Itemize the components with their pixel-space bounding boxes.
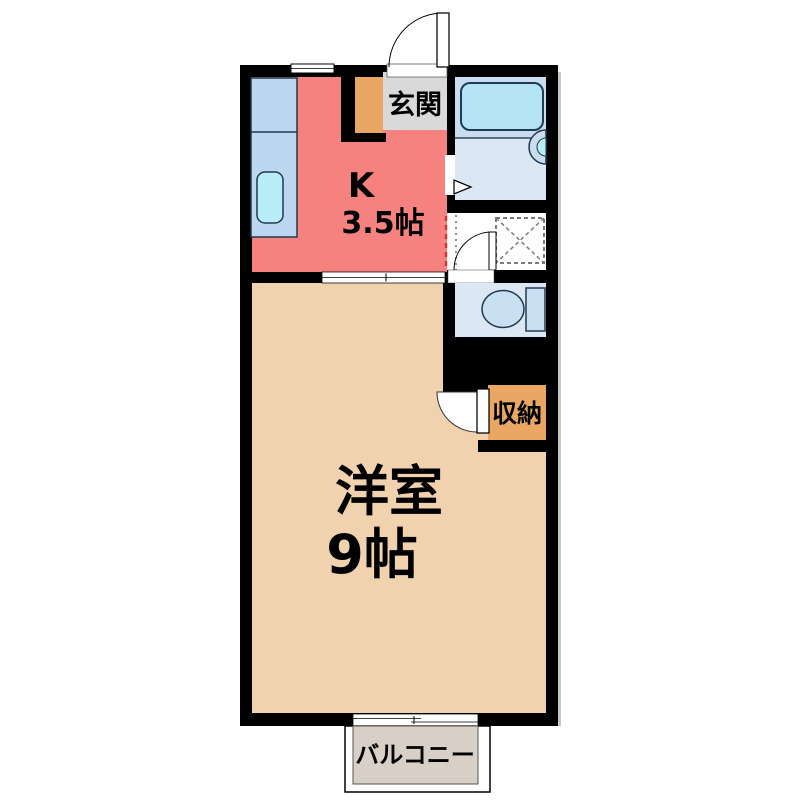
toilet-door-opening — [448, 270, 494, 283]
balcony-sliding-window-icon — [353, 714, 478, 726]
floorplan-canvas: 玄関 K 3.5帖 — [0, 0, 800, 800]
storage-bottom-wall — [478, 440, 546, 452]
entrance-door-arc-icon — [389, 13, 443, 67]
storage-label: 収納 — [492, 399, 542, 428]
entrance-door-leaf-icon — [437, 13, 449, 67]
main-room-type-label: 洋室 — [335, 460, 443, 523]
kitchen-size-label: 3.5帖 — [341, 206, 424, 241]
washroom-door-leaf-icon — [489, 232, 496, 270]
entrance-wall-stub-horizontal — [341, 133, 386, 142]
balcony-label: バルコニー — [355, 741, 475, 769]
toilet-tank-icon — [526, 288, 545, 331]
floorplan-page: 玄関 K 3.5帖 — [0, 0, 800, 800]
toilet-bowl-icon — [482, 291, 524, 328]
washroom-area — [446, 213, 546, 270]
entrance-step — [355, 77, 383, 133]
plan-shadow — [558, 72, 561, 726]
bathroom-area — [445, 77, 546, 200]
kitchen-type-label: K — [348, 166, 376, 206]
kitchen-sink-icon — [257, 172, 283, 223]
main-room-size-label: 9帖 — [326, 523, 418, 586]
entrance-wall-stub-vertical — [341, 65, 355, 141]
storage-door-leaf-icon — [477, 389, 489, 433]
storage-top-wall — [443, 337, 546, 385]
entrance-label: 玄関 — [388, 89, 442, 121]
balcony-area: バルコニー — [345, 714, 490, 792]
kitchen-area: 玄関 K 3.5帖 — [251, 13, 449, 283]
toilet-left-wall — [443, 283, 455, 337]
bathtub-icon — [461, 83, 543, 130]
